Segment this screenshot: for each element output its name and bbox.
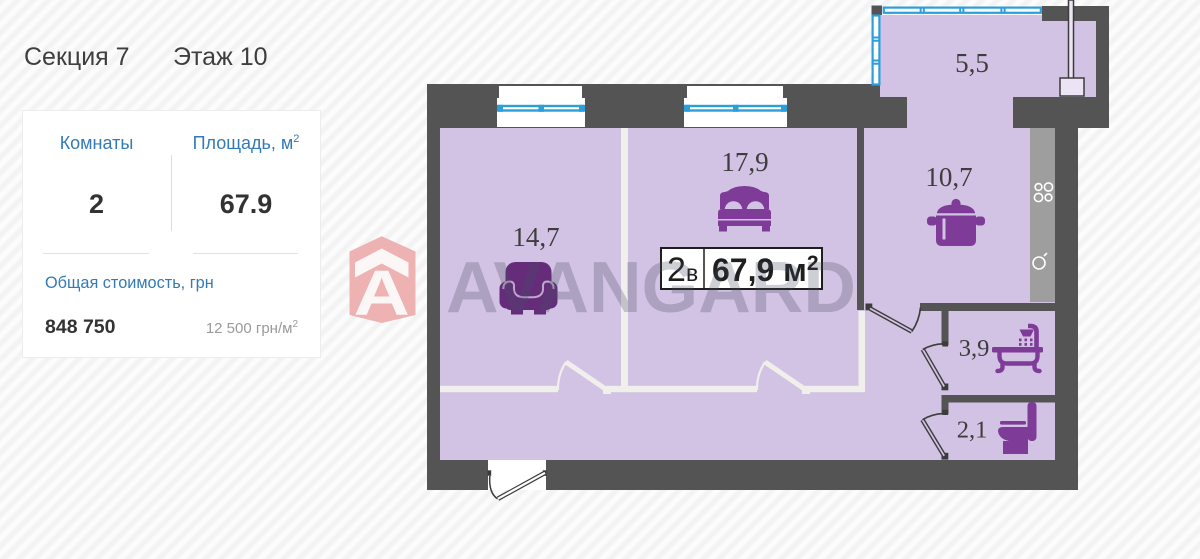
svg-text:5,5: 5,5 (955, 48, 989, 78)
svg-text:17,9: 17,9 (721, 147, 768, 177)
svg-text:A: A (354, 258, 410, 330)
svg-text:10,7: 10,7 (925, 162, 972, 192)
svg-text:AVANGARD: AVANGARD (446, 248, 856, 328)
svg-text:3,9: 3,9 (959, 335, 990, 362)
svg-text:2,1: 2,1 (957, 417, 988, 444)
